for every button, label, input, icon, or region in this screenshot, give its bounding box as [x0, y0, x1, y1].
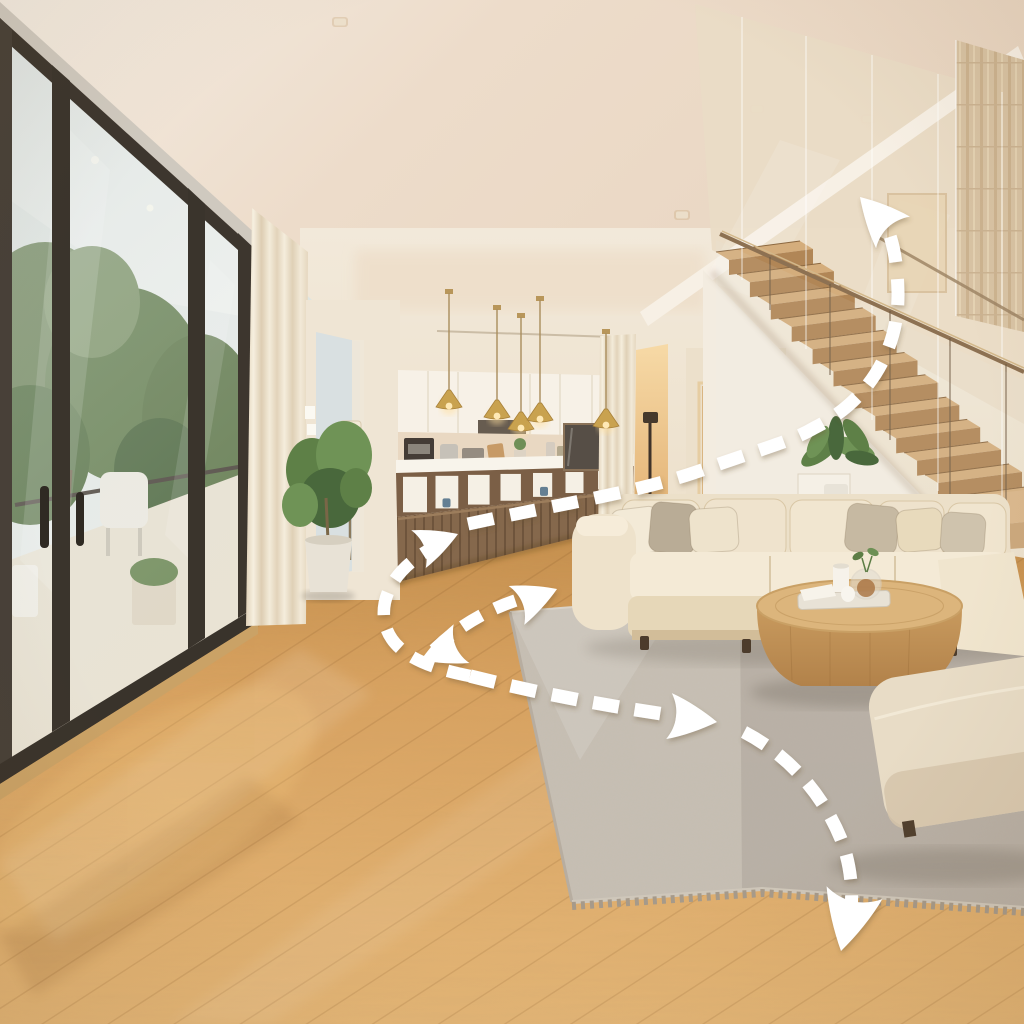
screenshot-root — [0, 0, 1024, 1024]
living-room-render — [0, 0, 1024, 1024]
